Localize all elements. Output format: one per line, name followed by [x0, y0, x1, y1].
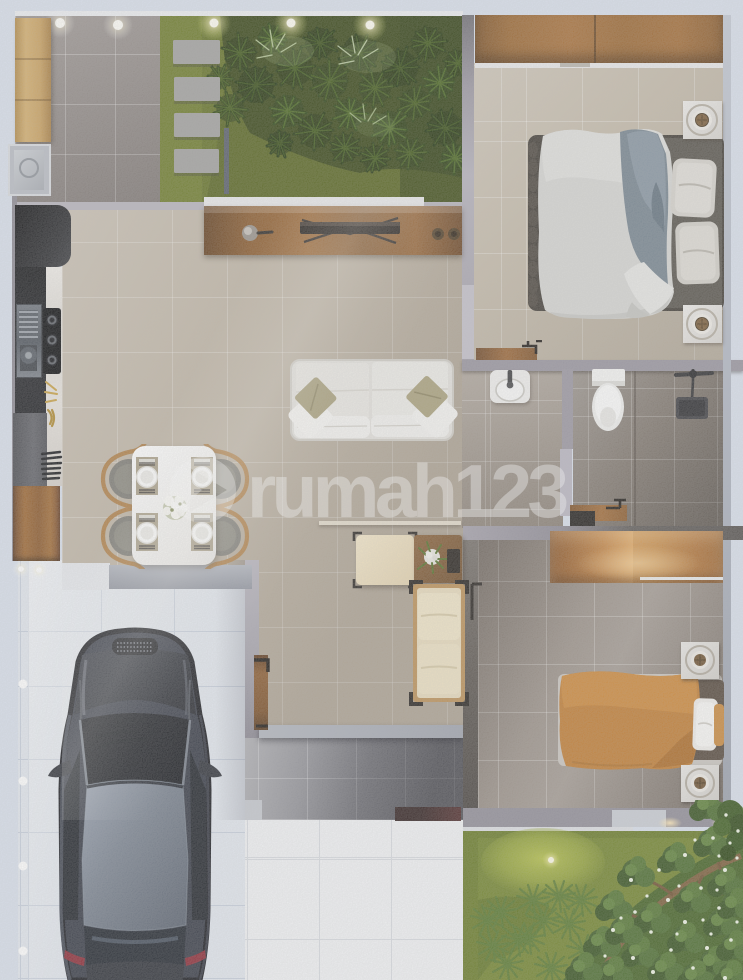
- svg-text:rumah123: rumah123: [247, 449, 566, 533]
